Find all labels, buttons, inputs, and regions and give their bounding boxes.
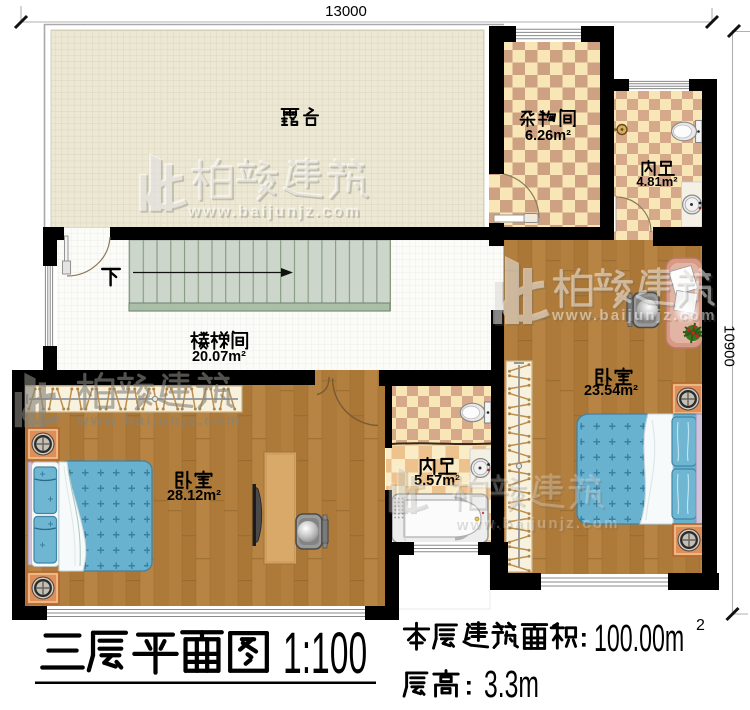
svg-text:www.baijunjz.com: www.baijunjz.com [187,203,361,220]
svg-text:13000: 13000 [325,3,367,20]
svg-text:23.54m²: 23.54m² [584,383,638,399]
svg-text:3.3m: 3.3m [484,663,539,705]
svg-text:2: 2 [696,617,705,634]
svg-text:www.baijunjz.com: www.baijunjz.com [454,515,620,532]
svg-text:www.baijunjz.com: www.baijunjz.com [551,307,717,324]
svg-text:100.00m: 100.00m [594,617,684,659]
svg-text:4.81m²: 4.81m² [636,174,678,189]
svg-text:28.12m²: 28.12m² [167,488,221,504]
svg-text:10900: 10900 [721,325,738,367]
svg-text:1:100: 1:100 [283,622,367,687]
svg-text:6.26m²: 6.26m² [525,128,571,144]
svg-text:20.07m²: 20.07m² [192,349,246,365]
svg-text:www.baijunjz.com: www.baijunjz.com [76,412,242,429]
